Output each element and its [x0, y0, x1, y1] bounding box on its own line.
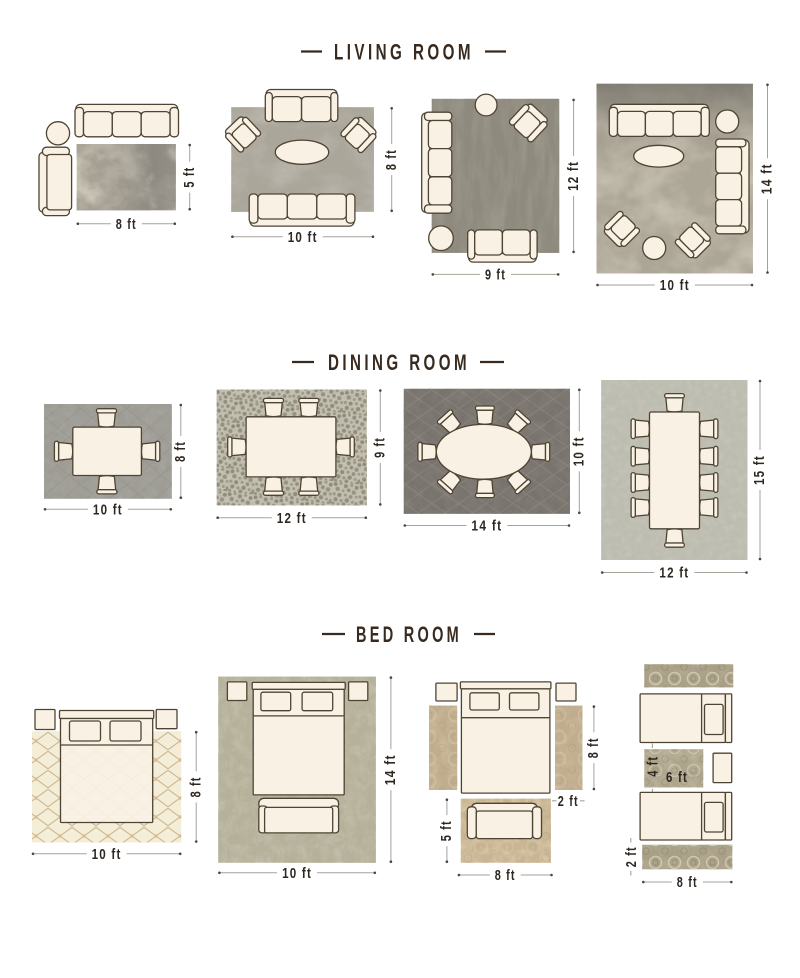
- svg-text:2 ft: 2 ft: [623, 846, 640, 867]
- svg-text:15 ft: 15 ft: [751, 455, 768, 485]
- svg-text:14 ft: 14 ft: [759, 163, 776, 194]
- svg-text:12 ft: 12 ft: [277, 510, 307, 527]
- svg-text:8 ft: 8 ft: [495, 867, 516, 884]
- svg-text:8 ft: 8 ft: [585, 737, 602, 758]
- svg-text:4 ft: 4 ft: [644, 756, 661, 777]
- svg-text:5 ft: 5 ft: [181, 167, 198, 188]
- svg-text:12 ft: 12 ft: [659, 565, 689, 582]
- svg-text:6 ft: 6 ft: [666, 769, 688, 786]
- svg-text:8 ft: 8 ft: [172, 441, 189, 462]
- svg-text:9 ft: 9 ft: [485, 267, 506, 284]
- svg-text:10 ft: 10 ft: [571, 436, 588, 466]
- svg-text:14 ft: 14 ft: [471, 518, 502, 535]
- svg-text:LIVING ROOM: LIVING ROOM: [334, 39, 474, 64]
- svg-text:10 ft: 10 ft: [93, 502, 123, 519]
- svg-text:2 ft: 2 ft: [558, 793, 579, 810]
- svg-text:8 ft: 8 ft: [187, 776, 204, 797]
- svg-text:14 ft: 14 ft: [382, 754, 399, 785]
- svg-text:10 ft: 10 ft: [288, 229, 318, 246]
- svg-text:10 ft: 10 ft: [660, 277, 690, 294]
- svg-text:10 ft: 10 ft: [92, 846, 122, 863]
- svg-text:12 ft: 12 ft: [565, 161, 582, 191]
- svg-text:8 ft: 8 ft: [116, 216, 137, 233]
- svg-text:5 ft: 5 ft: [438, 820, 455, 841]
- svg-text:8 ft: 8 ft: [383, 149, 400, 170]
- svg-text:DINING ROOM: DINING ROOM: [328, 350, 470, 375]
- svg-text:BED ROOM: BED ROOM: [356, 622, 462, 647]
- svg-text:8 ft: 8 ft: [677, 874, 698, 891]
- svg-text:10 ft: 10 ft: [282, 865, 312, 882]
- svg-text:9 ft: 9 ft: [372, 437, 389, 458]
